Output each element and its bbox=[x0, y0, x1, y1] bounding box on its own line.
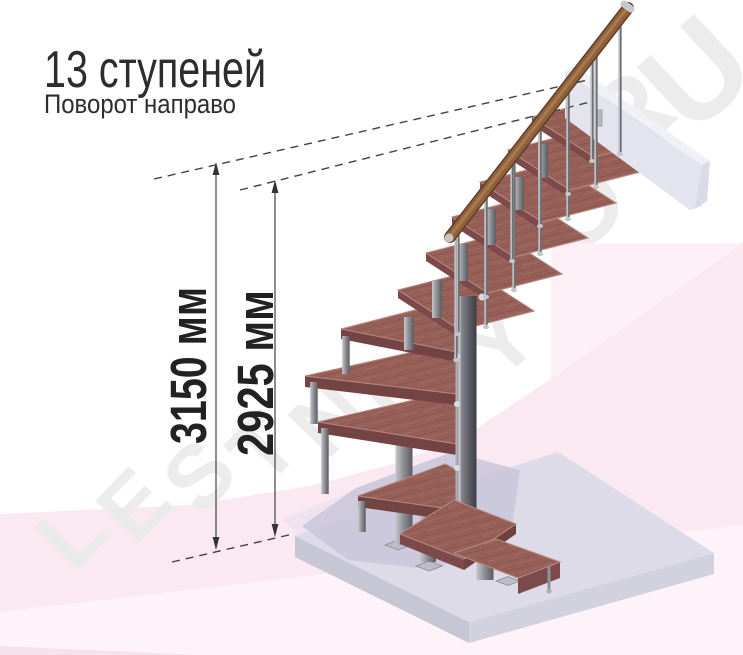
svg-text:3150 мм: 3150 мм bbox=[160, 287, 217, 444]
svg-text:2925 мм: 2925 мм bbox=[227, 290, 284, 456]
svg-text:Поворот направо: Поворот направо bbox=[44, 89, 236, 119]
